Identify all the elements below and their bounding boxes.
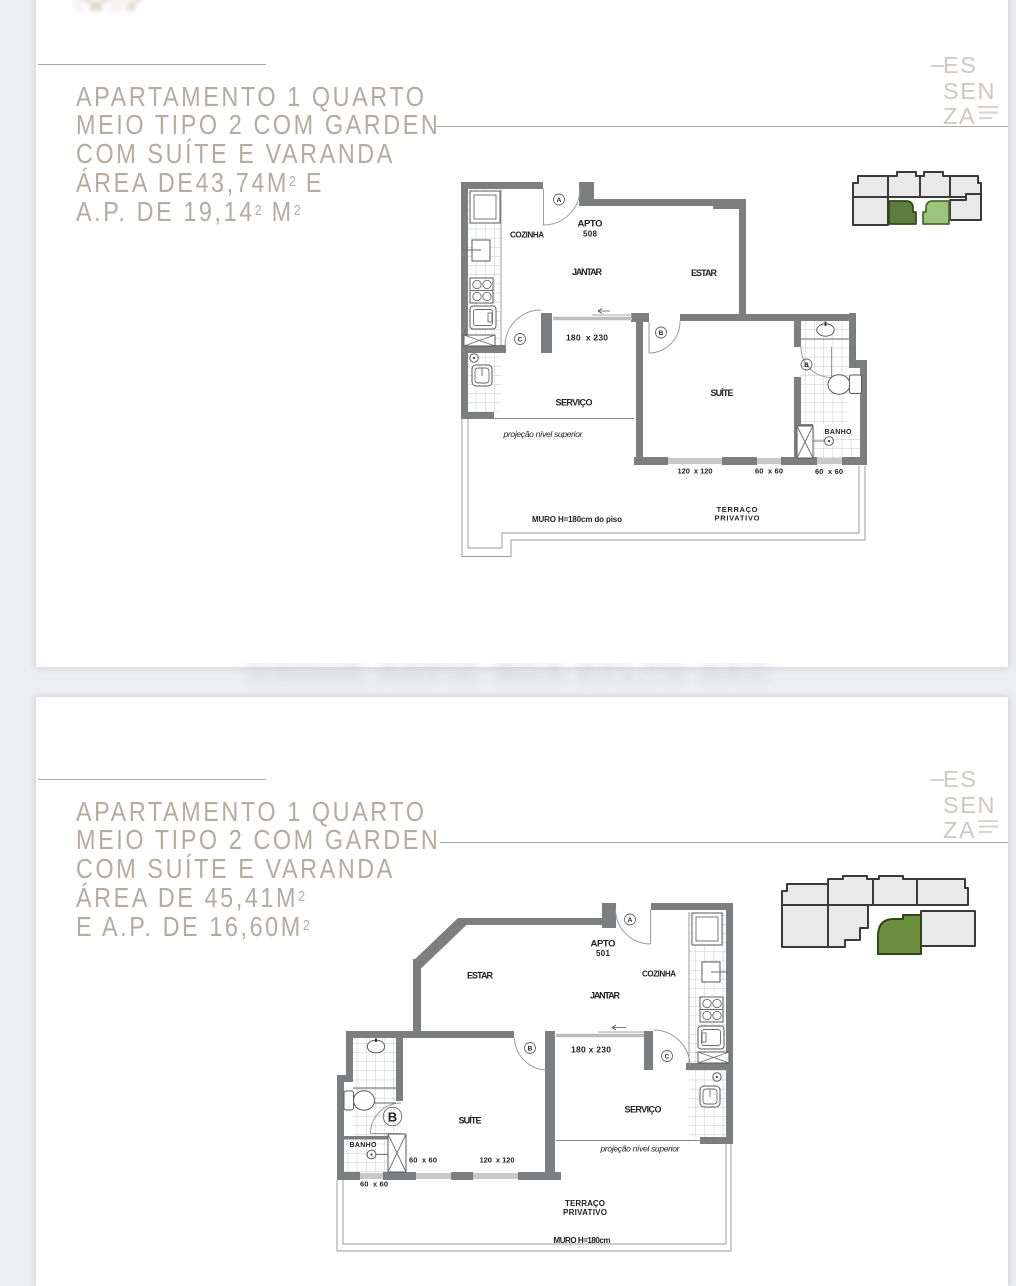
svg-text:60 x 60: 60 x 60 (815, 467, 843, 476)
svg-text:B: B (528, 1046, 533, 1053)
svg-text:APTO: APTO (591, 939, 616, 950)
svg-text:APTO: APTO (578, 219, 603, 230)
svg-text:C: C (518, 337, 523, 344)
svg-text:ESTAR: ESTAR (691, 268, 718, 278)
svg-text:SUÍTE: SUÍTE (459, 1116, 482, 1126)
svg-text:PRIVATIVO: PRIVATIVO (715, 514, 760, 523)
svg-text:60 x 60: 60 x 60 (755, 467, 783, 476)
svg-text:501: 501 (596, 949, 611, 958)
svg-text:B: B (659, 330, 664, 337)
svg-text:BANHO: BANHO (350, 1142, 378, 1149)
svg-text:B: B (804, 362, 809, 369)
svg-text:120 x 120: 120 x 120 (678, 467, 713, 476)
svg-text:A: A (628, 917, 633, 924)
svg-text:PRIVATIVO: PRIVATIVO (563, 1208, 607, 1217)
svg-text:TERRAÇO: TERRAÇO (565, 1199, 605, 1208)
svg-text:BANHO: BANHO (825, 429, 853, 436)
svg-text:60 x 60: 60 x 60 (409, 1156, 437, 1165)
svg-text:SERVIÇO: SERVIÇO (556, 398, 593, 408)
svg-text:60 x 60: 60 x 60 (360, 1180, 388, 1189)
svg-text:projeção nível superior: projeção nível superior (600, 1144, 681, 1154)
svg-text:B: B (388, 1110, 397, 1125)
svg-text:SERVIÇO: SERVIÇO (625, 1105, 662, 1115)
svg-text:ESTAR: ESTAR (467, 971, 494, 981)
svg-text:508: 508 (583, 230, 598, 239)
svg-text:projeção nível superior: projeção nível superior (503, 429, 584, 439)
svg-text:180 x 230: 180 x 230 (566, 333, 608, 343)
svg-text:SUÍTE: SUÍTE (711, 388, 734, 398)
svg-text:MURO H=180cm do piso: MURO H=180cm do piso (532, 515, 622, 524)
svg-text:180 x 230: 180 x 230 (571, 1045, 611, 1055)
svg-text:COZINHA: COZINHA (642, 970, 676, 979)
svg-text:MURO H=180cm: MURO H=180cm (554, 1236, 611, 1245)
svg-text:JANTAR: JANTAR (572, 267, 603, 277)
svg-text:C: C (665, 1054, 670, 1061)
svg-text:JANTAR: JANTAR (590, 991, 621, 1001)
svg-text:COZINHA: COZINHA (510, 231, 544, 240)
svg-text:120 x 120: 120 x 120 (480, 1156, 515, 1165)
svg-text:A: A (557, 197, 562, 204)
